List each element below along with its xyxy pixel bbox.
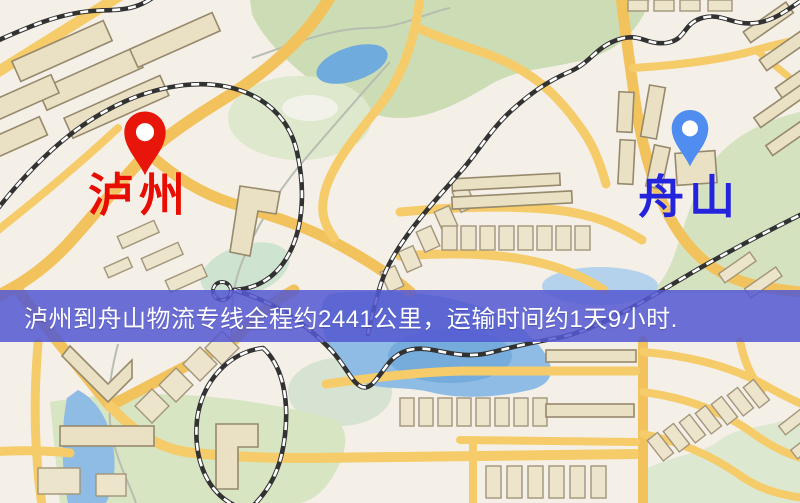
destination-pin-body bbox=[672, 110, 709, 166]
origin-pin-body bbox=[124, 111, 165, 175]
map[interactable]: 泸州 舟山 泸州到舟山物流专线全程约2441公里，运输时间约1天9小时. bbox=[0, 0, 800, 503]
destination-city-label: 舟山 bbox=[638, 174, 740, 220]
route-info-banner: 泸州到舟山物流专线全程约2441公里，运输时间约1天9小时. bbox=[0, 290, 800, 342]
route-info-text: 泸州到舟山物流专线全程约2441公里，运输时间约1天9小时. bbox=[0, 299, 678, 334]
origin-city-label: 泸州 bbox=[88, 172, 190, 218]
map-canvas[interactable] bbox=[0, 0, 800, 503]
origin-pin-hole bbox=[136, 123, 154, 141]
destination-pin-hole bbox=[682, 120, 698, 136]
destination-pin-icon[interactable] bbox=[667, 107, 713, 168]
origin-pin-icon[interactable] bbox=[119, 108, 171, 177]
